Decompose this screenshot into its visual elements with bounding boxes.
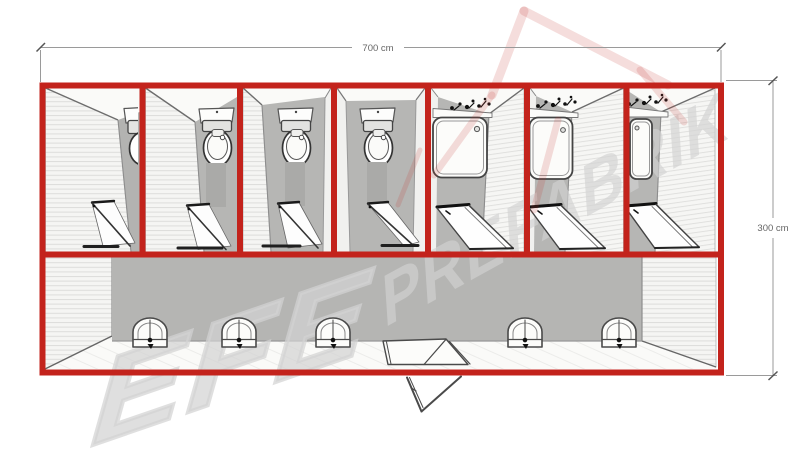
svg-text:300 cm: 300 cm [757, 223, 788, 234]
svg-text:700 cm: 700 cm [362, 43, 393, 54]
